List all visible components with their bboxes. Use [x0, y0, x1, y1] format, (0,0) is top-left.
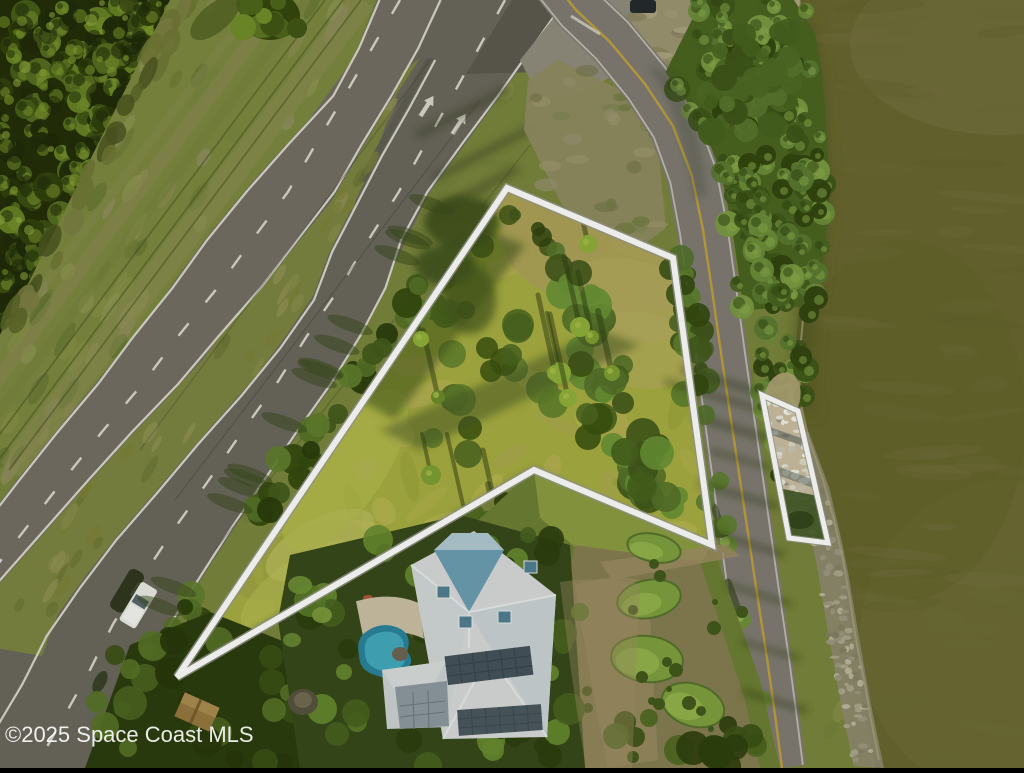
svg-text:©2025 Space Coast MLS: ©2025 Space Coast MLS — [5, 722, 254, 747]
